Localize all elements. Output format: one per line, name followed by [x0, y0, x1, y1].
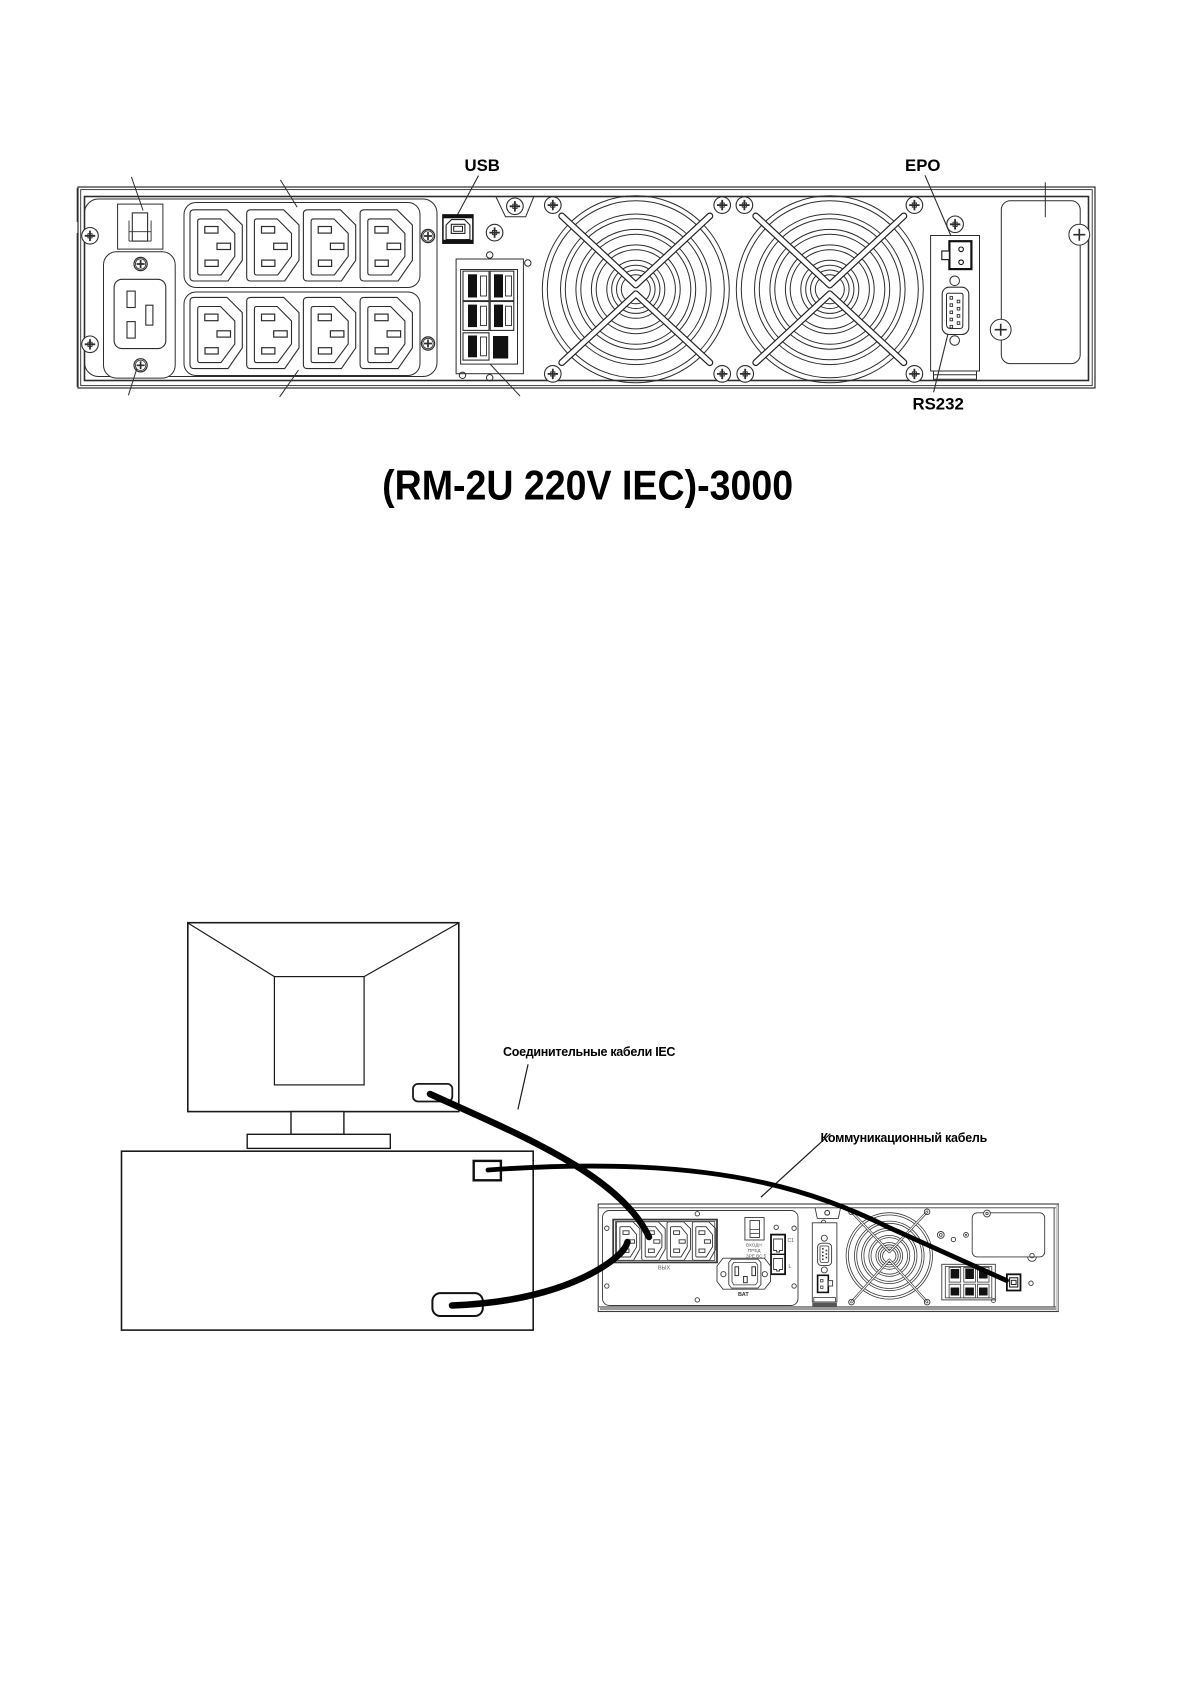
svg-text:ВАТ: ВАТ — [738, 1292, 749, 1298]
svg-text:(RM-2U 220V IEC)-3000: (RM-2U 220V IEC)-3000 — [382, 461, 793, 508]
svg-text:USB: USB — [465, 156, 500, 175]
svg-text:EPO: EPO — [905, 156, 940, 175]
svg-text:Коммуникационный кабель: Коммуникационный кабель — [821, 1131, 988, 1145]
svg-text:ПРЕД: ПРЕД — [748, 1248, 761, 1253]
svg-text:Соединительные кабели IEC: Соединительные кабели IEC — [503, 1045, 675, 1059]
svg-text:ВЫХ: ВЫХ — [658, 1266, 671, 1272]
svg-text:L: L — [789, 1264, 792, 1270]
svg-text:RS232: RS232 — [913, 395, 964, 414]
svg-text:C1: C1 — [788, 1238, 795, 1244]
svg-text:ВХОДН: ВХОДН — [746, 1243, 762, 1248]
